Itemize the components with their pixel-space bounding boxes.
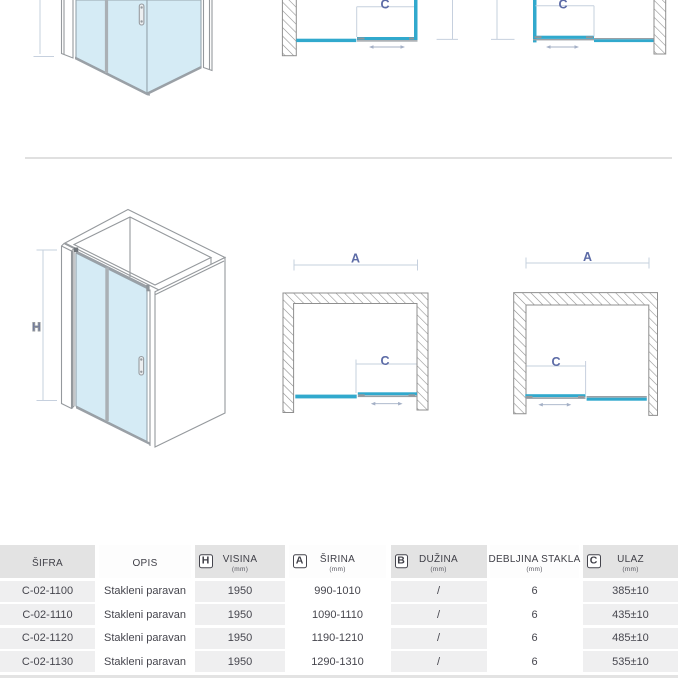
svg-text:C: C: [380, 354, 389, 368]
svg-text:A: A: [351, 252, 360, 266]
svg-text:C: C: [380, 0, 389, 12]
svg-text:H: H: [32, 320, 41, 334]
svg-text:A: A: [583, 250, 592, 264]
svg-text:C: C: [551, 355, 560, 369]
svg-text:C: C: [558, 0, 567, 12]
